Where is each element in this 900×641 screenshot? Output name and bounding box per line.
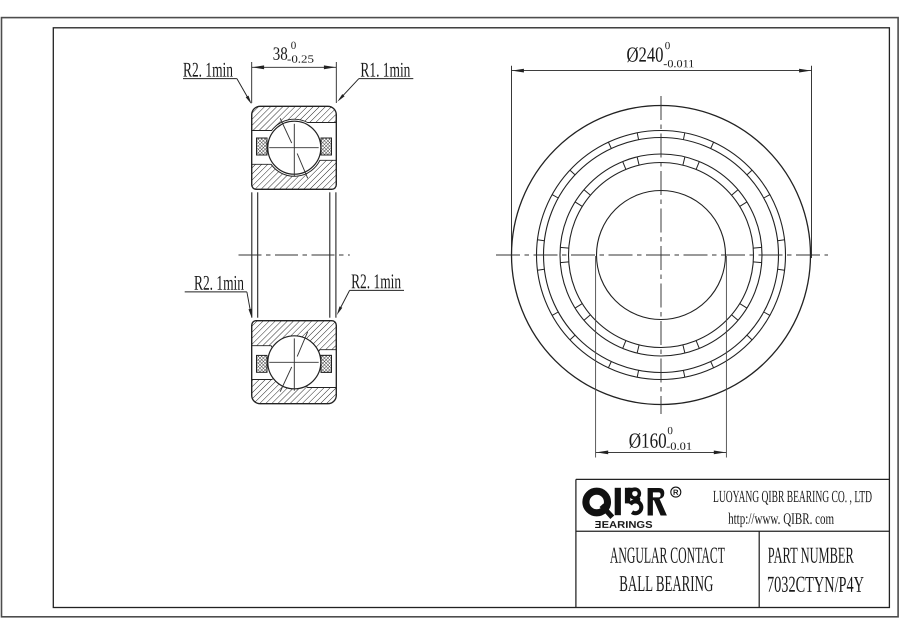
svg-text:R2. 1min: R2. 1min: [194, 271, 244, 295]
svg-text:E: E: [594, 520, 601, 531]
svg-text:0: 0: [291, 40, 297, 52]
svg-text:-0.01: -0.01: [666, 441, 692, 453]
svg-text:Ø160: Ø160: [629, 429, 667, 453]
svg-text:LUOYANG QIBR BEARING CO. , LTD: LUOYANG QIBR BEARING CO. , LTD: [713, 487, 872, 506]
svg-text:R2. 1min: R2. 1min: [183, 58, 233, 82]
svg-text:ANGULAR CONTACT: ANGULAR CONTACT: [610, 543, 725, 568]
svg-text:http://www. QIBR. com: http://www. QIBR. com: [728, 511, 834, 528]
svg-text:7032CTYN/P4Y: 7032CTYN/P4Y: [767, 572, 864, 597]
svg-text:BALL BEARING: BALL BEARING: [619, 571, 713, 596]
svg-text:EARINGS: EARINGS: [602, 520, 654, 531]
svg-text:38: 38: [273, 44, 288, 65]
svg-text:0: 0: [665, 40, 671, 52]
svg-text:-0.25: -0.25: [287, 54, 315, 66]
svg-text:R: R: [673, 488, 679, 497]
svg-text:R1. 1min: R1. 1min: [360, 58, 410, 82]
svg-text:-0.011: -0.011: [663, 58, 694, 70]
svg-text:R2. 1min: R2. 1min: [351, 269, 401, 293]
svg-text:Ø240: Ø240: [626, 43, 663, 67]
svg-text:PART NUMBER: PART NUMBER: [768, 543, 854, 568]
svg-text:0: 0: [667, 425, 673, 437]
